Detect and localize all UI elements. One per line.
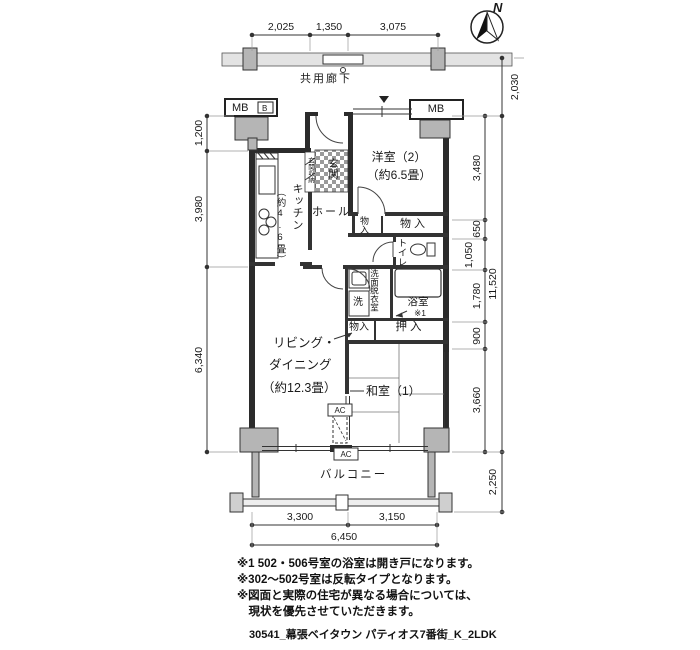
- living-dining-label-2: ダイニング: [269, 359, 332, 372]
- bath-note-arrow: [396, 311, 407, 318]
- mb-left-b-label: B: [262, 105, 267, 113]
- dim-right-6: 3,660: [471, 387, 483, 413]
- footnote-line: ※1 502・506号室の浴室は開き戸になります。: [237, 556, 479, 572]
- dim-right-5: 900: [471, 327, 483, 345]
- western2-door-arc: [358, 187, 385, 214]
- floorplan-page: N 共用廊下 2,025 1,350 3,075 MB B MB 洋室（2） （…: [0, 0, 700, 650]
- dim-bottom-total: 6,450: [331, 532, 357, 543]
- living-dining-size: （約12.3畳）: [262, 382, 336, 395]
- dim-bottom-2: 3,150: [379, 512, 405, 523]
- entry-door-arc: [316, 116, 343, 143]
- dim-right-balcony: 2,250: [487, 469, 499, 495]
- dim-top-2: 1,350: [316, 22, 342, 33]
- storage-small-label: 物入: [359, 216, 368, 234]
- japanese-room1-label: 和室（1）: [366, 385, 421, 397]
- entry-triangle-marker: [379, 96, 389, 103]
- ac-indoor-label: AC: [334, 407, 345, 415]
- living-leader-arrow: [334, 333, 352, 339]
- living-dining-label-1: リビング・: [273, 337, 336, 350]
- dim-right-2: 650: [471, 220, 483, 238]
- footnote-line: ※図面と実際の住宅が異なる場合については、: [237, 588, 479, 604]
- washroom-label: 洗面脱衣室: [370, 269, 379, 312]
- dim-left-1: 1,200: [193, 120, 205, 146]
- dim-bottom-1: 3,300: [287, 512, 313, 523]
- western-room2-size: （約6.5畳）: [367, 169, 432, 181]
- bathroom-label: 浴室: [408, 297, 429, 308]
- toilet-icon: [411, 243, 436, 256]
- dim-right-3: 1,050: [463, 242, 475, 268]
- ac-outdoor-label: AC: [340, 451, 351, 459]
- western-room2-label: 洋室（2）: [372, 151, 427, 163]
- dim-right-total: 11,520: [487, 268, 499, 299]
- bathroom-note-ref: ※1: [414, 309, 426, 318]
- kitchen-size-label: （約4.6畳）: [275, 187, 285, 265]
- dim-left-2: 3,980: [193, 196, 205, 222]
- mb-left-label: MB: [232, 103, 249, 114]
- entrance-storage-label: 玄関収納: [306, 157, 313, 183]
- dim-left-3: 6,340: [193, 347, 205, 373]
- north-compass-icon: [471, 11, 503, 43]
- closet-label: 押入: [396, 322, 425, 334]
- bathtub-icon: [395, 269, 441, 297]
- kitchen-sink-icon: [259, 166, 275, 194]
- toilet-door-arc: [373, 242, 393, 262]
- dim-right-corridor: 2,030: [509, 74, 521, 100]
- storage-bottom-label: 物入: [349, 323, 369, 333]
- plan-caption: 30541_幕張ベイタウン パティオス7番街_K_2LDK: [249, 626, 497, 642]
- door-arcs: [316, 116, 393, 291]
- toilet-label: トイレ: [396, 238, 406, 267]
- footnote-line: ※302〜502号室は反転タイプとなります。: [237, 572, 479, 588]
- footnotes: ※1 502・506号室の浴室は開き戸になります。 ※302〜502号室は反転タ…: [237, 556, 479, 620]
- dim-right-4: 1,780: [471, 283, 483, 309]
- balcony-label: バルコニー: [320, 470, 387, 482]
- mb-right-label: MB: [428, 104, 445, 115]
- footnote-line: 現状を優先させていただきます。: [237, 604, 479, 620]
- balcony-rail: [230, 493, 452, 512]
- living-door-arc: [322, 268, 343, 289]
- entrance-label: 玄関: [326, 158, 336, 180]
- dim-right-1: 3,480: [471, 155, 483, 181]
- corridor-label: 共用廊下: [300, 74, 352, 85]
- storage-large-label: 物入: [400, 219, 428, 230]
- hall-label: ホール: [312, 207, 351, 218]
- dim-top-3: 3,075: [380, 22, 406, 33]
- kitchen-label: キッチン: [291, 183, 302, 231]
- north-label: N: [493, 1, 502, 14]
- dim-top-1: 2,025: [268, 22, 294, 33]
- laundry-label: 洗: [353, 298, 363, 308]
- corridor-structure: [222, 48, 512, 73]
- vent-hatch: [256, 153, 278, 159]
